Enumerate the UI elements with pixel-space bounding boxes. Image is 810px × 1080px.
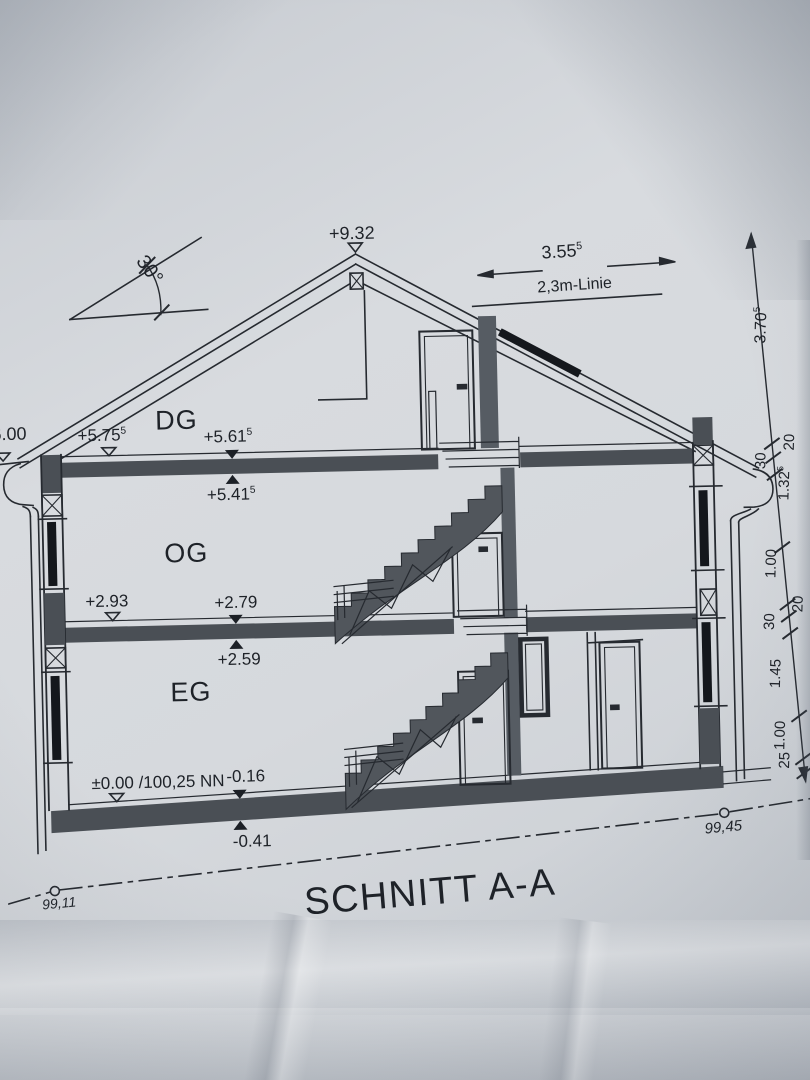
parapet-block: [44, 593, 65, 645]
eg-slab-top-label: -0.16: [226, 767, 265, 786]
chain-label-10: 25: [776, 728, 794, 792]
dg-ffl-label: +5.755: [77, 426, 126, 445]
og-slab-top-marker: [229, 615, 243, 624]
door-handle: [611, 705, 619, 709]
right-exterior-wall: [688, 417, 728, 769]
dg-slab-top-label: +5.615: [203, 427, 252, 446]
section-linework: [0, 0, 810, 1080]
eg-slab-top-marker: [233, 790, 247, 799]
dim-arrow-left: [478, 270, 493, 277]
door-handle: [479, 547, 487, 551]
dg-railing-post: [429, 391, 437, 449]
dg-slab-top-marker: [225, 450, 239, 459]
dg-slab-bottom-label: +5.415: [207, 485, 256, 504]
og-floor-slab: [65, 619, 454, 643]
room-label-eg: EG: [170, 677, 212, 706]
photo-of-section-drawing: +9.32 3.555 2,3m-Linie 30° 6.00 DG OG EG…: [0, 0, 810, 1080]
dg-ffl-marker: [102, 448, 116, 456]
eg-interior-window-frame: [520, 639, 548, 716]
ridge-width-label: 3.555: [541, 241, 583, 263]
eg-slab-bottom-label: -0.41: [233, 832, 272, 851]
og-ffl-label: +2.93: [85, 592, 128, 611]
left-gutter: [3, 463, 46, 854]
eave-level-marker: [0, 453, 10, 461]
stairwell-edge: [316, 291, 366, 400]
dg-floor-slab-right: [520, 448, 693, 467]
terrain-point-right: [720, 808, 729, 817]
room-label-dg: DG: [155, 406, 198, 435]
og-window-left: [47, 522, 57, 586]
eg-window-left: [50, 676, 61, 760]
og-slab-bottom-marker: [229, 640, 243, 649]
ridge-level-label: +9.32: [329, 224, 375, 244]
og-slab-bottom-label: +2.59: [217, 650, 260, 669]
eg-slab-bottom-marker: [233, 821, 247, 830]
attic-height-line: [473, 294, 662, 306]
eg-door-right: [599, 642, 642, 769]
roof-pitch-symbol: [68, 237, 208, 321]
og-floor-slab-right: [526, 613, 697, 632]
skylight: [503, 332, 576, 374]
dg-door: [419, 330, 475, 449]
right-downspout: [731, 520, 745, 780]
eave-block: [41, 455, 62, 493]
chain-label-4: 1.325: [776, 451, 794, 515]
door-handle: [457, 385, 466, 389]
eg-window-right: [701, 622, 712, 702]
chain-label-5: 1.00: [763, 531, 781, 595]
right-rafter-line: [363, 276, 695, 458]
ridge-width-dim-line: [478, 262, 675, 275]
terrain-right-label: 99,45: [704, 818, 743, 837]
eave-level-label: 6.00: [0, 425, 27, 445]
og-window-right: [698, 490, 709, 566]
chain-label-1: 3.705: [753, 293, 772, 357]
ridge-level-marker: [348, 243, 362, 252]
eg-ffl-label: ±0.00 /100,25 NN: [91, 772, 225, 793]
chimney: [478, 316, 499, 448]
room-label-og: OG: [164, 538, 209, 567]
og-arrival-treads: [458, 605, 528, 637]
eg-ffl-marker: [110, 793, 124, 801]
dg-arrival-treads: [440, 437, 520, 469]
dg-slab-bottom-marker: [225, 475, 239, 484]
dg-floor-slab: [61, 454, 438, 478]
chain-arrow-top: [746, 234, 755, 248]
door-handle: [473, 718, 482, 722]
chain-label-3: 30: [752, 429, 770, 493]
footing-lines: [723, 768, 770, 784]
chain-label-8: 1.45: [767, 641, 785, 705]
eave-block-right: [692, 417, 713, 444]
terrain-left-label: 99,11: [42, 894, 77, 912]
og-slab-top-label: +2.79: [214, 593, 257, 612]
dim-arrow-right: [660, 257, 675, 264]
chain-label-6: 20: [790, 572, 808, 636]
parapet-block-right: [699, 708, 720, 764]
og-ffl-marker: [106, 612, 120, 620]
drawing-sheet: +9.32 3.555 2,3m-Linie 30° 6.00 DG OG EG…: [0, 0, 810, 1080]
